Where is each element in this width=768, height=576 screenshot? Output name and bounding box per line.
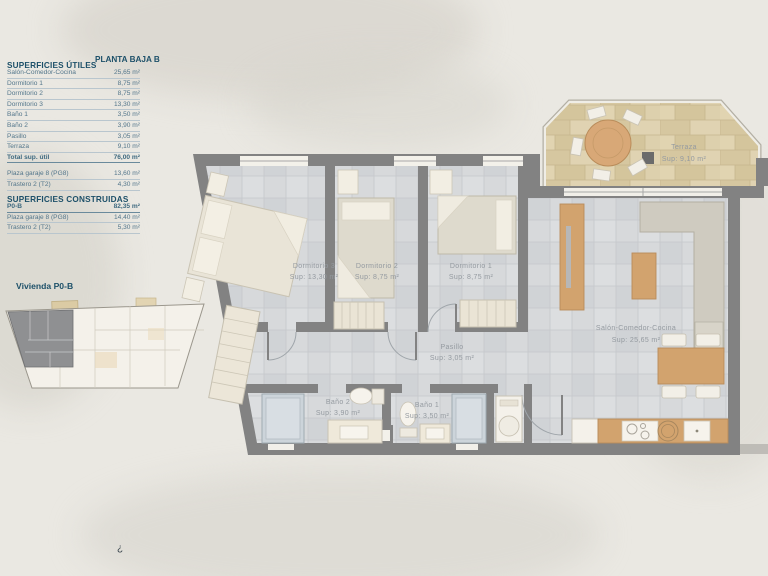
wall-segment	[740, 186, 764, 198]
shower-tray	[266, 398, 300, 439]
building-overview-plan	[6, 298, 204, 388]
room-area: Sup: 3,05 m²	[430, 355, 475, 362]
tv-unit	[560, 204, 584, 310]
washbasin	[340, 426, 368, 439]
neighbour-area	[742, 200, 768, 340]
room-label: Baño 2	[326, 399, 350, 406]
fridge	[572, 419, 598, 443]
room-label: Baño 1	[415, 402, 439, 409]
washing-machine-door	[499, 416, 519, 436]
room-label: Terraza	[671, 144, 697, 151]
plan-drawing: Dormitorio 3 Sup: 13,30 m² Dormitorio 2 …	[0, 0, 768, 576]
nightstand	[430, 170, 452, 194]
washing-machine-panel	[500, 400, 518, 406]
chair	[662, 386, 686, 398]
room-area: Sup: 9,10 m²	[662, 156, 707, 163]
wall-corner	[756, 158, 768, 186]
room-label: Dormitorio 2	[356, 263, 398, 270]
room-area: Sup: 8,75 m²	[449, 274, 494, 281]
terrace	[546, 103, 758, 186]
room-label: Dormitorio 1	[450, 263, 492, 270]
shower-tray	[456, 398, 482, 439]
chair	[696, 386, 720, 398]
coffee-table	[632, 253, 656, 299]
room-area: Sup: 25,65 m²	[612, 337, 661, 344]
wall-niche	[382, 430, 390, 441]
toilet	[350, 388, 372, 404]
room-label: Dormitorio 3	[293, 263, 335, 270]
washbasin	[426, 428, 444, 439]
wall-stub	[740, 444, 768, 454]
overview-patch	[148, 328, 164, 340]
kitchen-counter	[572, 419, 728, 443]
laundry-fixtures	[496, 396, 522, 442]
room-area: Sup: 8,75 m²	[355, 274, 400, 281]
room-label: Salón-Comedor-Cocina	[596, 325, 676, 332]
room-area: Sup: 13,30 m²	[290, 274, 339, 281]
overview-patch	[95, 352, 117, 368]
pillow	[342, 202, 390, 220]
bottom-window-slit	[456, 444, 478, 450]
wardrobe	[460, 300, 516, 327]
main-floor-plan: Dormitorio 3 Sup: 13,30 m² Dormitorio 2 …	[182, 103, 768, 455]
room-area: Sup: 3,50 m²	[405, 413, 450, 420]
highlighted-unit-p0b	[8, 310, 73, 367]
chair	[696, 334, 720, 346]
nightstand	[338, 170, 358, 194]
tv	[566, 226, 571, 288]
room-area: Sup: 3,90 m²	[316, 410, 361, 417]
floor-plan-sheet: SUPERFICIES ÚTILES PLANTA BAJA B Salón-C…	[0, 0, 768, 576]
chair	[662, 334, 686, 346]
round-table	[585, 120, 631, 166]
bottom-window-slit	[268, 444, 294, 450]
pillow	[496, 200, 512, 250]
dining-table	[658, 348, 724, 384]
toilet-tank	[372, 389, 384, 404]
terrace-sliding-door	[564, 188, 722, 196]
wardrobe	[334, 302, 384, 329]
drain	[696, 430, 699, 433]
room-label: Pasillo	[440, 344, 463, 351]
footer-mark: ¿	[117, 543, 123, 554]
toilet-tank	[400, 428, 417, 437]
nightstand	[182, 277, 204, 302]
